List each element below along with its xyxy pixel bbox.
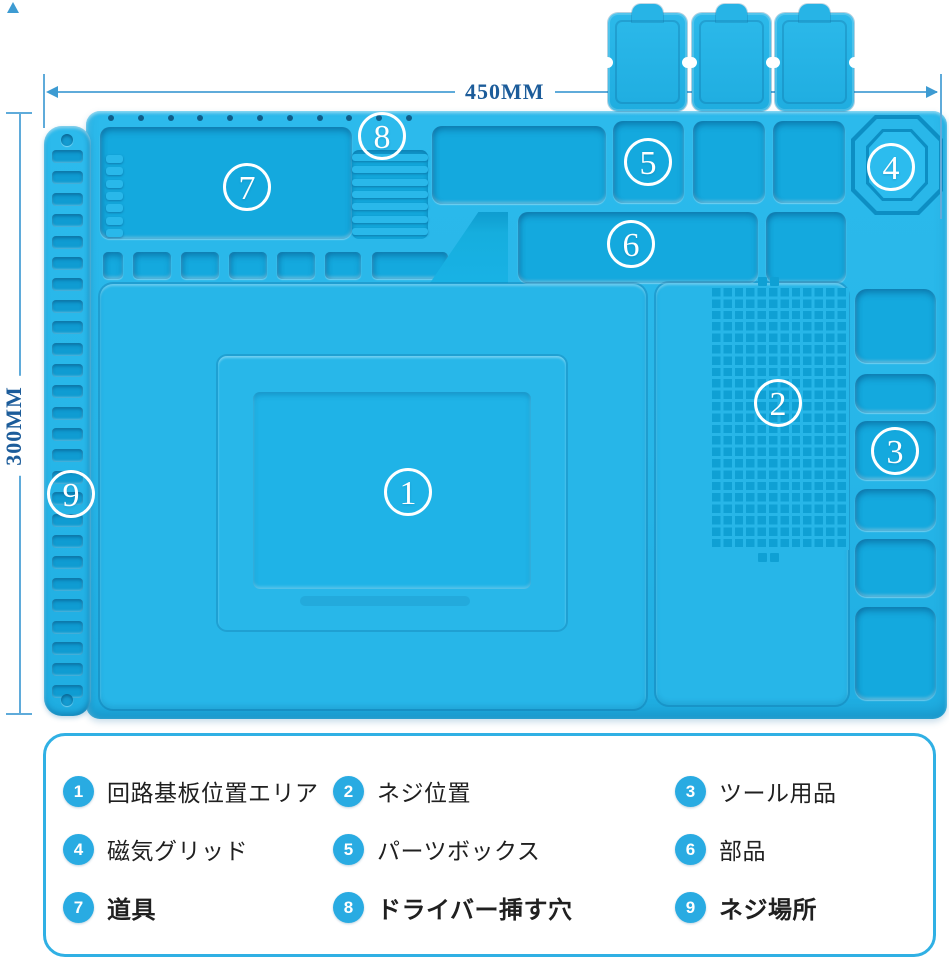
ladder-slot — [52, 321, 83, 334]
legend-item-3: 3 ツール用品 — [675, 762, 933, 820]
legend-label-8: ドライバー挿す穴 — [377, 890, 573, 925]
strip-hole-top — [61, 134, 73, 146]
tool-slot-4 — [855, 489, 936, 531]
tab — [106, 217, 123, 225]
ladder-slot — [52, 150, 83, 163]
top-hole — [227, 115, 233, 121]
ladder-slot — [52, 364, 83, 377]
ladder-slot — [52, 449, 83, 462]
lid-notch — [602, 57, 613, 68]
legend-label-5: パーツボックス — [377, 832, 540, 866]
top-hole — [197, 115, 203, 121]
ladder-slot — [52, 300, 83, 313]
legend-badge-8: 8 — [333, 892, 364, 923]
tab — [106, 204, 123, 212]
legend-label-1: 回路基板位置エリア — [107, 774, 319, 808]
tool-slot-2 — [855, 374, 936, 413]
screw-ladder-strip — [44, 126, 91, 716]
grid-cap-square — [758, 553, 767, 562]
legend-item-5: 5 パーツボックス — [333, 820, 675, 878]
legend-label-6: 部品 — [719, 832, 766, 866]
lid-notch — [769, 57, 780, 68]
circuit-board-panel — [100, 284, 646, 709]
product-diagram: 300MM 450MM — [0, 0, 949, 963]
ladder-slot — [52, 193, 83, 206]
legend-badge-2: 2 — [333, 776, 364, 807]
top-hole — [317, 115, 323, 121]
top-hole — [406, 115, 412, 121]
legend-badge-9: 9 — [675, 892, 706, 923]
callout-8-screwdriver-holes: 8 — [358, 112, 406, 160]
legend-label-4: 磁気グリッド — [107, 832, 248, 866]
parts-box-lid-2 — [692, 13, 771, 111]
callout-7-tools: 7 — [223, 163, 271, 211]
tab — [106, 229, 123, 237]
legend-badge-7: 7 — [63, 892, 94, 923]
screwdriver-holes-section — [352, 150, 428, 239]
screw-grid-panel — [656, 283, 848, 705]
ladder-slot — [52, 642, 83, 655]
rib — [352, 191, 428, 198]
grid-cap-square — [770, 553, 779, 562]
parts-box-lid-1 — [608, 13, 687, 111]
grid-cap-square — [770, 277, 779, 286]
right-arrow-icon — [926, 86, 938, 98]
legend-badge-6: 6 — [675, 834, 706, 865]
legend-label-3: ツール用品 — [719, 774, 837, 808]
parts-box-2 — [693, 121, 765, 203]
ladder-slot — [52, 621, 83, 634]
parts-box-3 — [773, 121, 845, 203]
ladder-slot — [52, 257, 83, 270]
rib — [352, 179, 428, 186]
ladder-slot — [52, 278, 83, 291]
small-slot-5 — [325, 252, 361, 279]
ladder-slot — [52, 214, 83, 227]
component-tray-right — [766, 212, 846, 283]
callout-6-components: 6 — [607, 220, 655, 268]
legend-item-2: 2 ネジ位置 — [333, 762, 675, 820]
top-hole — [257, 115, 263, 121]
ladder-slot — [52, 428, 83, 441]
ladder-slot — [52, 407, 83, 420]
height-dimension-label: 300MM — [1, 376, 27, 476]
tool-slot-1 — [855, 289, 936, 363]
top-hole — [346, 115, 352, 121]
small-slot-1 — [133, 252, 171, 279]
ladder-slot — [52, 343, 83, 356]
ladder-slot — [52, 556, 83, 569]
tray-tab-column — [106, 155, 123, 237]
height-dim-top-tick — [6, 112, 32, 114]
lid-inner-outline — [615, 20, 680, 104]
tab — [106, 155, 123, 163]
rib — [352, 166, 428, 173]
rib — [352, 203, 428, 210]
small-slot-0 — [103, 252, 123, 279]
legend-badge-5: 5 — [333, 834, 364, 865]
ladder-slot — [52, 171, 83, 184]
legend-item-1: 1 回路基板位置エリア — [63, 762, 333, 820]
top-hole — [287, 115, 293, 121]
top-hole — [108, 115, 114, 121]
width-dim-left-tick — [43, 74, 45, 128]
ladder-slot — [52, 385, 83, 398]
ladder-slot-group — [52, 150, 83, 698]
legend-item-9: 9 ネジ場所 — [675, 878, 933, 936]
tab — [106, 192, 123, 200]
legend-badge-1: 1 — [63, 776, 94, 807]
lid-notch — [849, 57, 860, 68]
legend-item-6: 6 部品 — [675, 820, 933, 878]
tool-slot-5 — [855, 539, 936, 597]
lid-notch — [686, 57, 697, 68]
legend-label-2: ネジ位置 — [377, 774, 471, 808]
width-dimension-label: 450MM — [455, 79, 555, 105]
legend-label-9: ネジ場所 — [719, 890, 817, 925]
small-slot-4 — [277, 252, 315, 279]
callout-3-tool-slots: 3 — [871, 427, 919, 475]
tab — [106, 167, 123, 175]
small-slot-3 — [229, 252, 267, 279]
legend-item-7: 7 道具 — [63, 878, 333, 936]
tab — [106, 180, 123, 188]
ladder-slot — [52, 599, 83, 612]
strip-hole-bottom — [61, 694, 73, 706]
callout-5-parts-box: 5 — [624, 138, 672, 186]
width-dim-right-tick — [940, 74, 942, 219]
legend-badge-3: 3 — [675, 776, 706, 807]
height-dim-bottom-tick — [6, 713, 32, 715]
callout-2-screw-position: 2 — [754, 379, 802, 427]
small-slot-2 — [181, 252, 219, 279]
legend-item-8: 8 ドライバー挿す穴 — [333, 878, 675, 936]
callout-1-circuit-board-area: 1 — [384, 468, 432, 516]
callout-9-screw-place: 9 — [47, 470, 95, 518]
top-hole — [138, 115, 144, 121]
legend-badge-4: 4 — [63, 834, 94, 865]
callout-4-magnetic-grid: 4 — [867, 143, 915, 191]
left-arrow-icon — [46, 86, 58, 98]
legend-label-7: 道具 — [107, 890, 156, 925]
parts-box-lid-3 — [775, 13, 854, 111]
legend-item-4: 4 磁気グリッド — [63, 820, 333, 878]
lid-inner-outline — [782, 20, 847, 104]
tool-slot-6 — [855, 607, 936, 700]
lid-inner-outline — [699, 20, 764, 104]
ladder-slot — [52, 236, 83, 249]
ladder-slot — [52, 578, 83, 591]
grid-cap-square — [758, 277, 767, 286]
embossed-logo-area — [300, 596, 470, 606]
top-hole — [168, 115, 174, 121]
shallow-tray — [432, 126, 606, 204]
ladder-slot — [52, 663, 83, 676]
legend-box: 1 回路基板位置エリア 2 ネジ位置 3 ツール用品 4 磁気グリッド 5 パー… — [43, 733, 936, 957]
ladder-slot — [52, 535, 83, 548]
rib — [352, 228, 428, 235]
rib — [352, 216, 428, 223]
up-arrow-icon — [7, 2, 19, 13]
